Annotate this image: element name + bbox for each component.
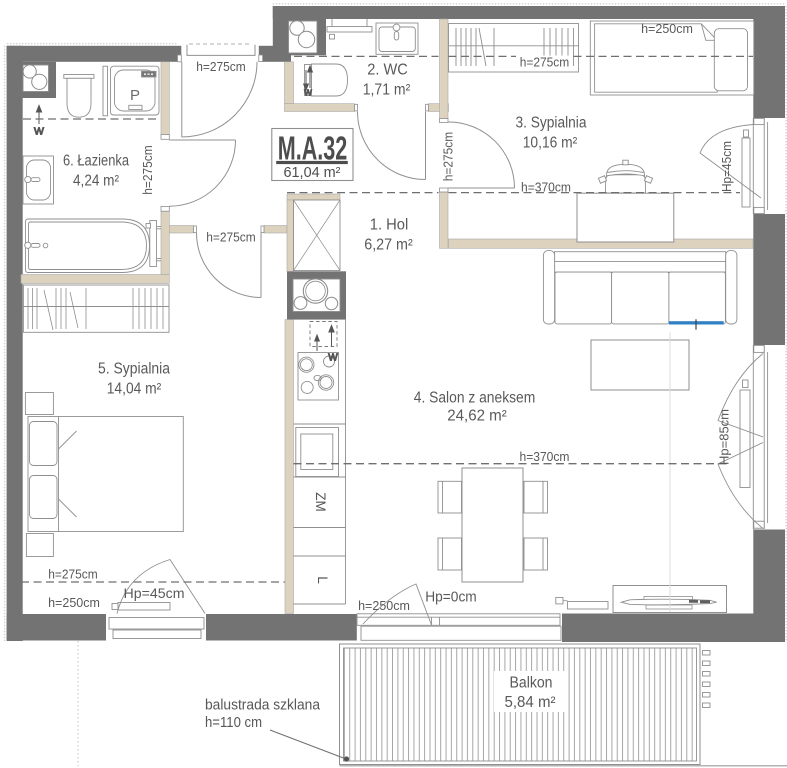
- svg-text:Hp=0cm: Hp=0cm: [425, 590, 477, 606]
- svg-text:h=275cm: h=275cm: [141, 145, 155, 195]
- svg-text:14,04 m²: 14,04 m²: [107, 381, 162, 398]
- svg-text:Hp=45cm: Hp=45cm: [124, 586, 185, 601]
- svg-text:W: W: [304, 89, 312, 98]
- svg-text:L: L: [315, 576, 330, 584]
- svg-text:h=275cm: h=275cm: [196, 60, 246, 74]
- svg-text:1,71 m²: 1,71 m²: [363, 82, 411, 99]
- svg-text:h=250cm: h=250cm: [641, 22, 693, 36]
- svg-text:1. Hol: 1. Hol: [370, 217, 409, 234]
- svg-text:W: W: [34, 126, 44, 138]
- svg-text:h=250cm: h=250cm: [358, 599, 410, 613]
- svg-text:3. Sypialnia: 3. Sypialnia: [516, 115, 587, 132]
- svg-text:6,27 m²: 6,27 m²: [364, 237, 413, 254]
- svg-text:h=275cm: h=275cm: [520, 56, 570, 70]
- svg-text:ZM: ZM: [313, 492, 328, 512]
- svg-text:5,84 m²: 5,84 m²: [505, 694, 556, 711]
- svg-text:h=250cm: h=250cm: [48, 596, 100, 610]
- svg-text:Hp=45cm: Hp=45cm: [719, 141, 734, 192]
- svg-text:P: P: [130, 87, 140, 104]
- svg-text:24,62 m²: 24,62 m²: [447, 408, 507, 425]
- svg-text:h=275cm: h=275cm: [48, 568, 98, 582]
- svg-text:Hp=85cm: Hp=85cm: [717, 409, 732, 465]
- svg-text:5. Sypialnia: 5. Sypialnia: [98, 361, 170, 378]
- svg-text:61,04 m²: 61,04 m²: [284, 165, 341, 181]
- svg-text:2. WC: 2. WC: [367, 62, 408, 79]
- svg-text:h=370cm: h=370cm: [521, 181, 571, 195]
- svg-text:h=275cm: h=275cm: [442, 132, 456, 182]
- svg-text:4,24 m²: 4,24 m²: [73, 173, 119, 190]
- svg-text:h=370cm: h=370cm: [520, 450, 570, 464]
- svg-text:W: W: [328, 353, 338, 364]
- svg-text:6. Łazienka: 6. Łazienka: [63, 153, 129, 170]
- svg-text:balustrada szklana: balustrada szklana: [205, 697, 321, 714]
- svg-text:10,16 m²: 10,16 m²: [523, 135, 578, 152]
- svg-text:h=275cm: h=275cm: [206, 231, 256, 245]
- svg-text:h=110 cm: h=110 cm: [205, 714, 262, 731]
- svg-text:Balkon: Balkon: [510, 675, 553, 692]
- svg-text:4. Salon z aneksem: 4. Salon z aneksem: [414, 390, 536, 407]
